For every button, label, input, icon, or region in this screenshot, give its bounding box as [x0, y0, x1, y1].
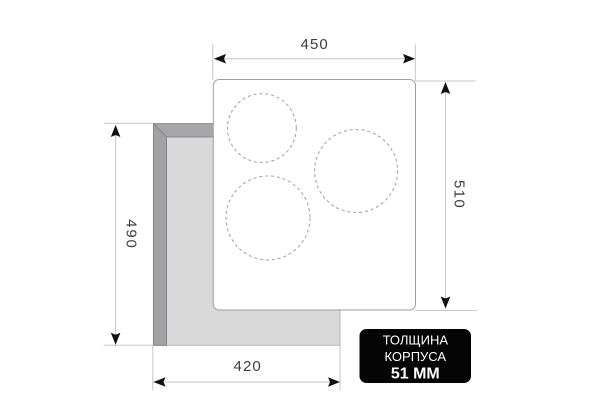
svg-text:420: 420 [234, 358, 262, 375]
svg-text:510: 510 [450, 180, 467, 209]
svg-text:КОРПУСА: КОРПУСА [385, 349, 447, 364]
svg-text:ТОЛЩИНА: ТОЛЩИНА [383, 332, 449, 347]
svg-text:51 ММ: 51 ММ [391, 365, 440, 382]
svg-text:450: 450 [301, 36, 329, 53]
svg-text:490: 490 [122, 219, 139, 249]
